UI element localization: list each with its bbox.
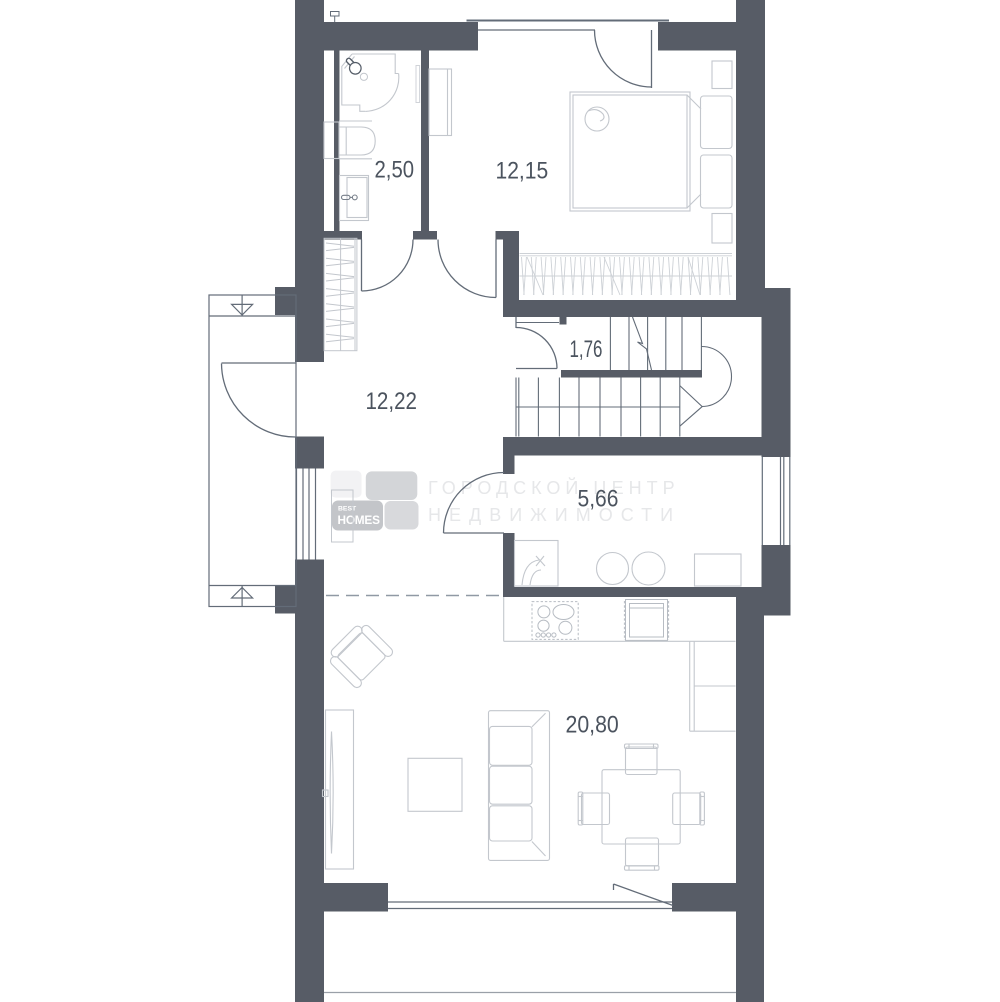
svg-text:12,15: 12,15: [496, 156, 549, 184]
svg-text:НЕДВИЖИМОСТИ: НЕДВИЖИМОСТИ: [428, 505, 681, 525]
svg-text:HOMES: HOMES: [338, 513, 381, 527]
svg-text:BEST: BEST: [338, 506, 357, 513]
svg-text:2,50: 2,50: [375, 156, 415, 183]
svg-text:20,80: 20,80: [566, 710, 619, 738]
svg-text:ГОРОДСКОЙ ЦЕНТР: ГОРОДСКОЙ ЦЕНТР: [428, 477, 680, 498]
svg-text:5,66: 5,66: [578, 484, 619, 512]
svg-text:12,22: 12,22: [366, 387, 417, 414]
svg-text:1,76: 1,76: [570, 336, 603, 363]
